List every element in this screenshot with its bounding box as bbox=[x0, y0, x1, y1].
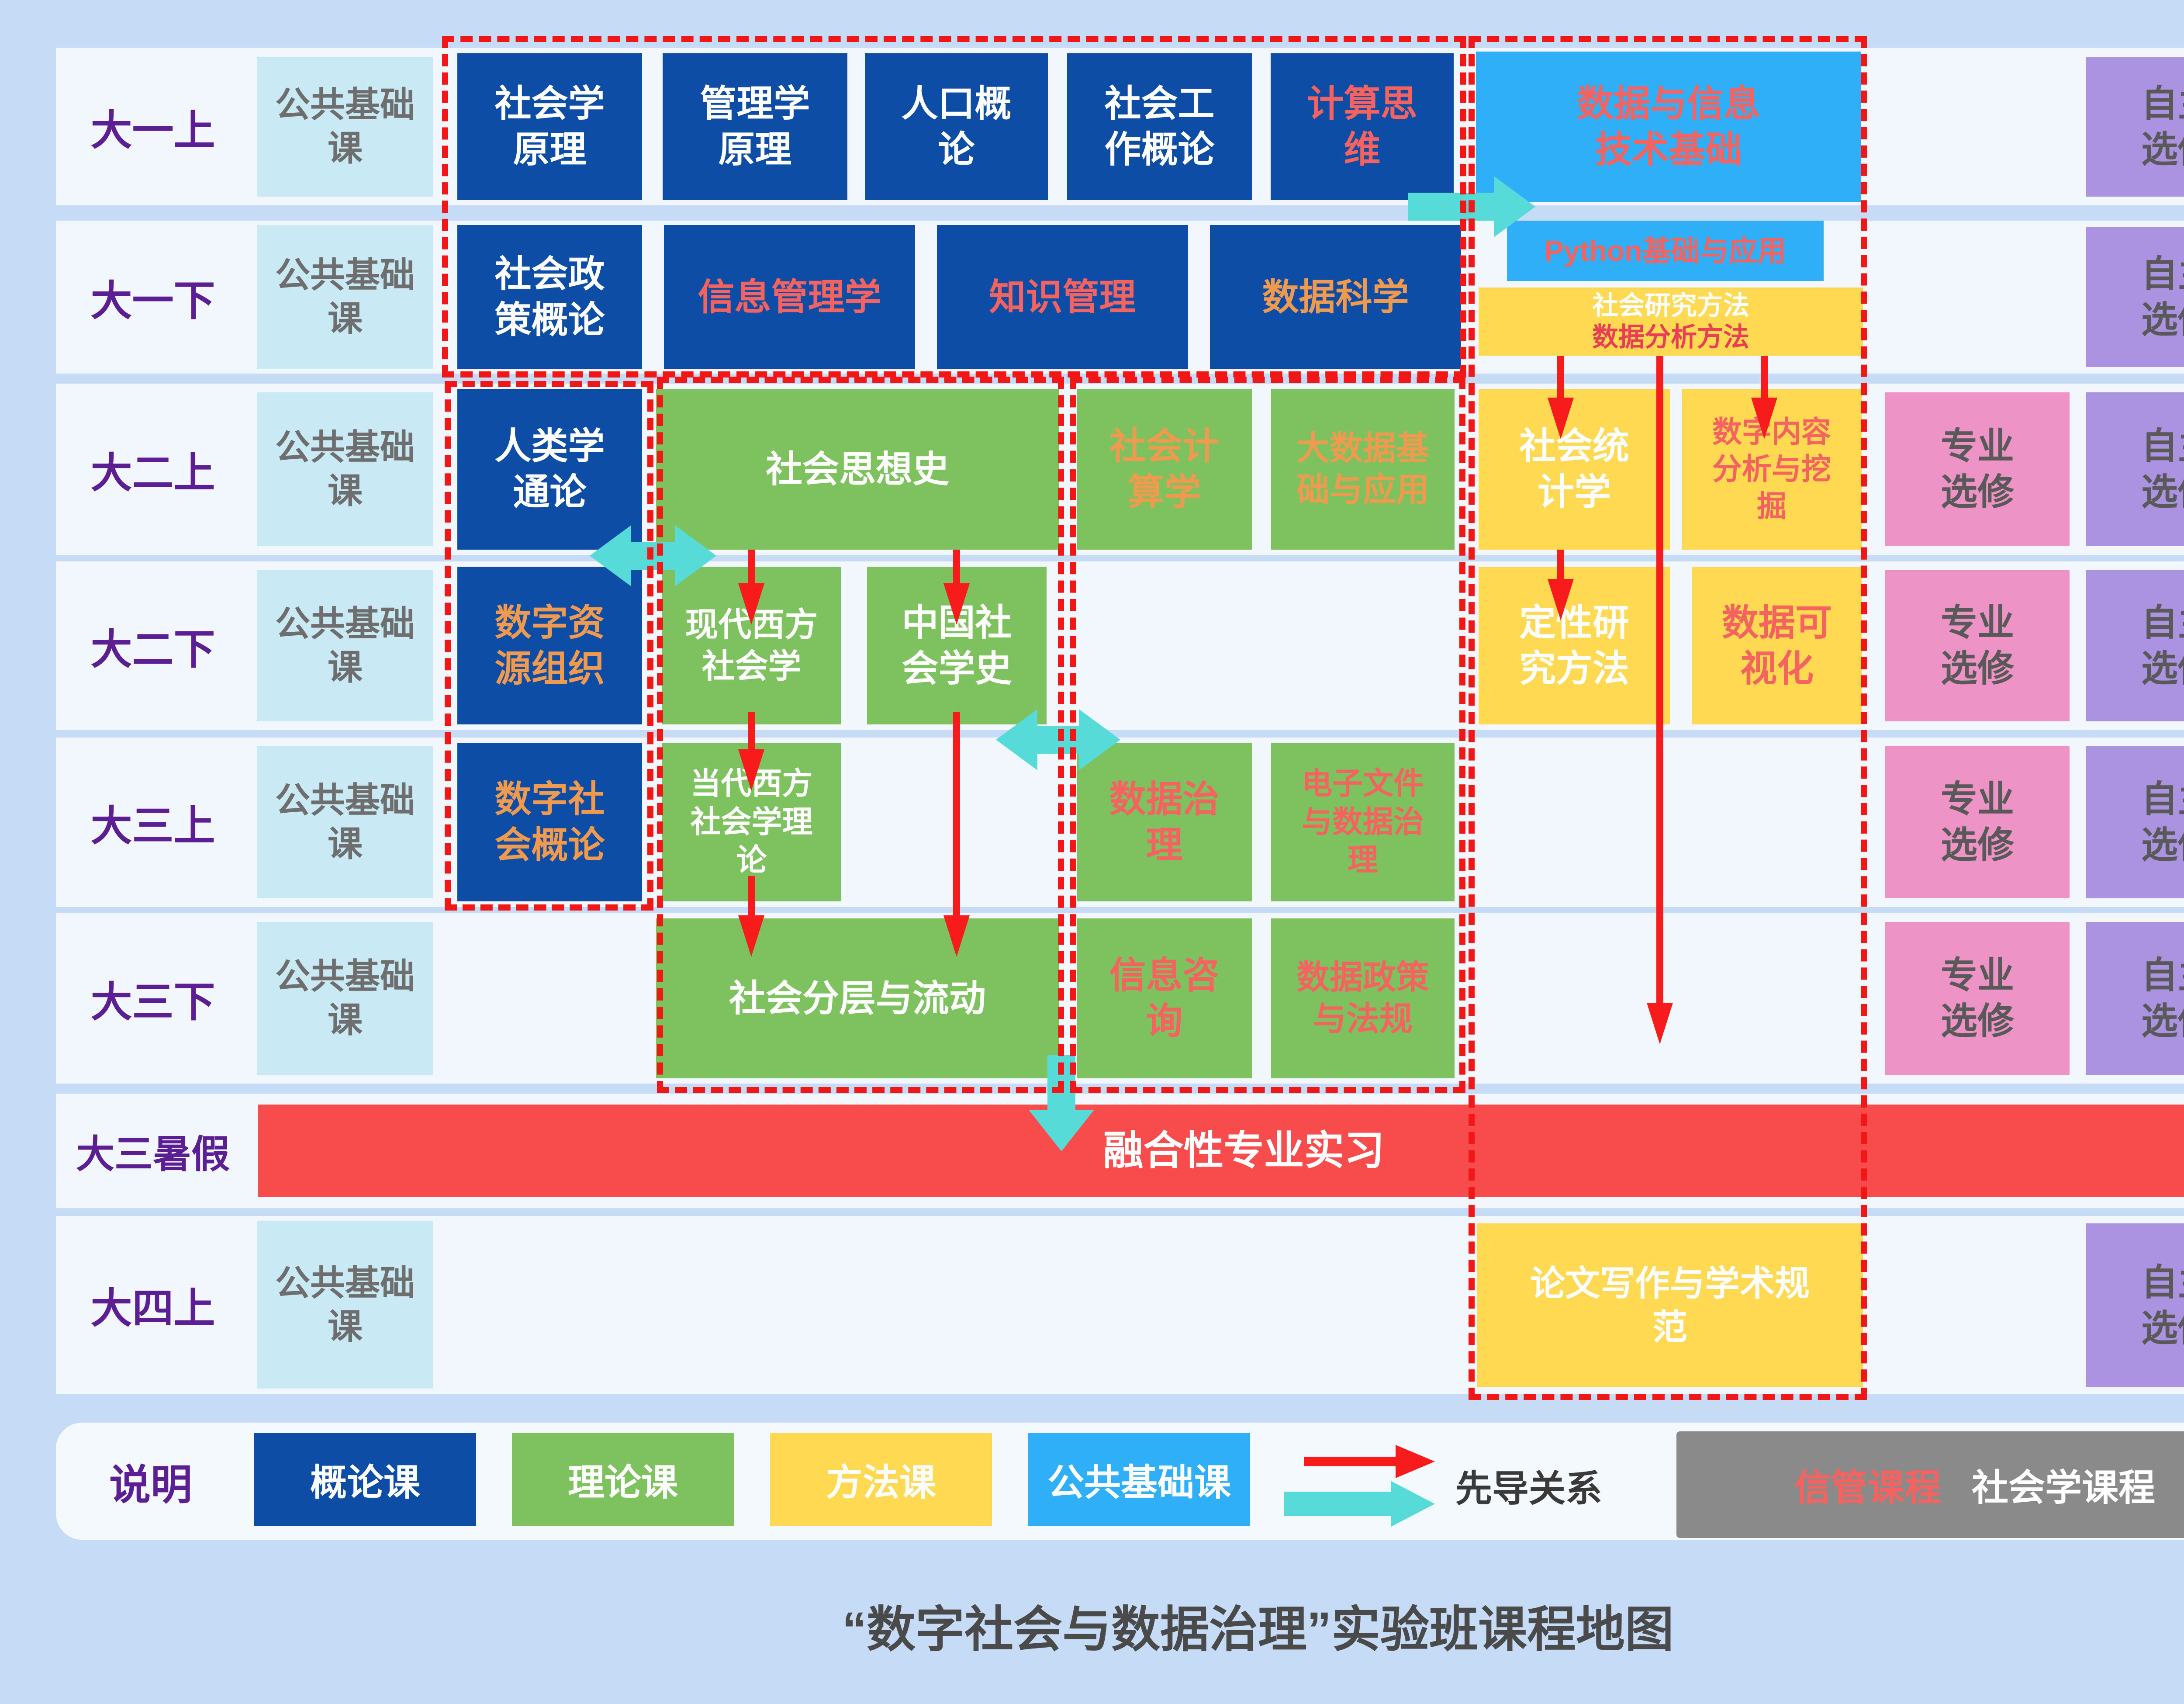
group-border-intro-courses bbox=[442, 36, 1466, 378]
group-border-fusion-courses bbox=[1070, 377, 1465, 1093]
free-elective-y1s2: 自主 选修 bbox=[2086, 227, 2184, 367]
legend-public-base-course: 公共基础课 bbox=[1028, 1433, 1250, 1526]
major-elective-y3s2: 专业 选修 bbox=[1885, 922, 2070, 1075]
group-border-sociology-theory bbox=[657, 377, 1064, 1093]
free-elective-y2s1: 自主 选修 bbox=[2086, 392, 2184, 546]
legend-im-courses: 信管课程 bbox=[1794, 1458, 1941, 1511]
free-elective-y3s2: 自主 选修 bbox=[2086, 922, 2184, 1075]
semester-label-y3s2: 大三下 bbox=[61, 913, 245, 1084]
semester-label-y2s1: 大二上 bbox=[61, 384, 245, 555]
public-base-box-y2s2: 公共基础 课 bbox=[257, 570, 433, 721]
free-elective-y1s1: 自主 选修 bbox=[2086, 57, 2184, 197]
semester-label-y1s1: 大一上 bbox=[61, 48, 245, 205]
free-elective-y4s1: 自主 选修 bbox=[2086, 1223, 2184, 1387]
legend-method-course: 方法课 bbox=[770, 1433, 992, 1526]
semester-label-y4s1: 大四上 bbox=[61, 1216, 245, 1394]
legend-course-types-box: 信管课程 社会学课程 融合课程 bbox=[1676, 1431, 2184, 1538]
legend-theory-course: 理论课 bbox=[512, 1433, 734, 1526]
public-base-box-y2s1: 公共基础 课 bbox=[257, 392, 433, 546]
free-elective-y2s2: 自主 选修 bbox=[2086, 570, 2184, 721]
legend-intro-course: 概论课 bbox=[254, 1433, 476, 1526]
course-map-canvas: 大一上 大一下 大二上 大二下 大三上 大三下 大三暑假 大四上 公共基础 课 … bbox=[0, 0, 2184, 1704]
group-border-digital-intro-column bbox=[445, 381, 653, 911]
group-border-im-courses bbox=[1469, 36, 1867, 1400]
semester-label-y3summer: 大三暑假 bbox=[61, 1094, 245, 1208]
public-base-box-y4s1: 公共基础 课 bbox=[257, 1221, 433, 1389]
public-base-box-y1s1: 公共基础 课 bbox=[257, 57, 433, 197]
free-elective-y3s1: 自主 选修 bbox=[2086, 746, 2184, 898]
semester-label-y1s2: 大一下 bbox=[61, 221, 245, 374]
major-elective-y2s1: 专业 选修 bbox=[1885, 392, 2070, 546]
semester-label-y2s2: 大二下 bbox=[61, 561, 245, 730]
major-elective-y2s2: 专业 选修 bbox=[1885, 570, 2070, 721]
legend-soc-courses: 社会学课程 bbox=[1972, 1458, 2155, 1511]
legend-heading: 说明 bbox=[79, 1423, 223, 1540]
semester-label-y3s1: 大三上 bbox=[61, 738, 245, 907]
public-base-box-y1s2: 公共基础 课 bbox=[257, 225, 433, 369]
legend-prereq-label: 先导关系 bbox=[1450, 1437, 1607, 1534]
public-base-box-y3s1: 公共基础 课 bbox=[257, 746, 433, 898]
course-internship-bar: 融合性专业实习 bbox=[258, 1105, 2184, 1197]
public-base-box-y3s2: 公共基础 课 bbox=[257, 922, 433, 1075]
major-elective-y3s1: 专业 选修 bbox=[1885, 746, 2070, 898]
page-title: “数字社会与数据治理”实验班课程地图 bbox=[0, 1582, 2184, 1669]
